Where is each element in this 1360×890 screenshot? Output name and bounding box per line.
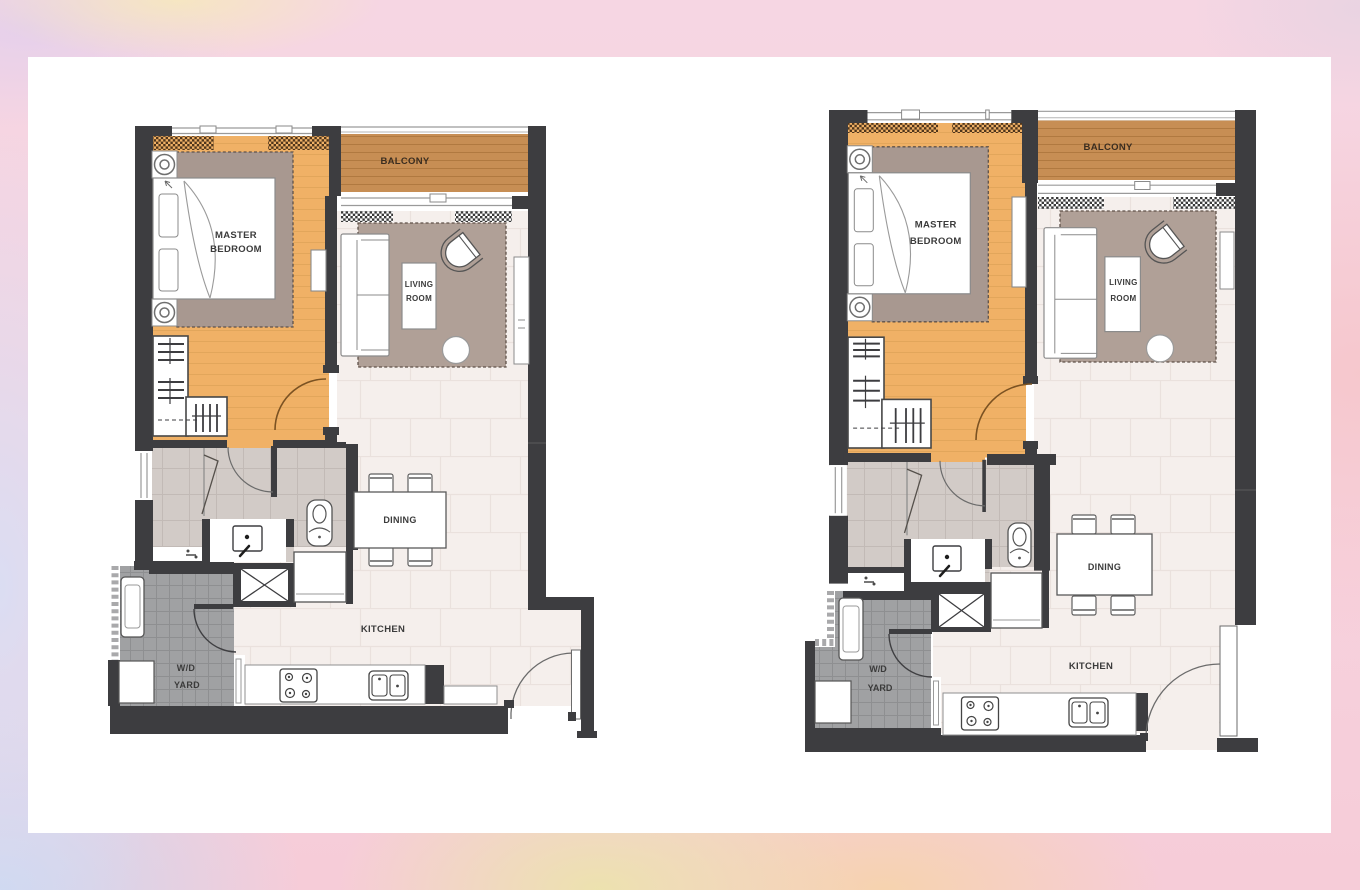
- svg-text:YARD: YARD: [174, 680, 200, 690]
- svg-text:KITCHEN: KITCHEN: [361, 624, 405, 635]
- svg-text:BEDROOM: BEDROOM: [210, 244, 262, 255]
- svg-text:ROOM: ROOM: [406, 294, 432, 303]
- svg-text:MASTER: MASTER: [915, 219, 957, 230]
- svg-text:MASTER: MASTER: [215, 230, 257, 241]
- svg-text:ROOM: ROOM: [1110, 294, 1136, 303]
- svg-text:W/D: W/D: [177, 663, 196, 673]
- svg-text:W/D: W/D: [869, 664, 887, 674]
- svg-text:LIVING: LIVING: [405, 280, 433, 289]
- svg-text:YARD: YARD: [868, 683, 893, 693]
- svg-text:DINING: DINING: [1088, 562, 1121, 572]
- svg-text:BALCONY: BALCONY: [380, 156, 429, 167]
- svg-text:LIVING: LIVING: [1109, 278, 1137, 287]
- svg-text:BEDROOM: BEDROOM: [910, 236, 962, 247]
- svg-text:KITCHEN: KITCHEN: [1069, 661, 1113, 672]
- svg-text:DINING: DINING: [383, 515, 416, 525]
- svg-text:BALCONY: BALCONY: [1084, 142, 1133, 153]
